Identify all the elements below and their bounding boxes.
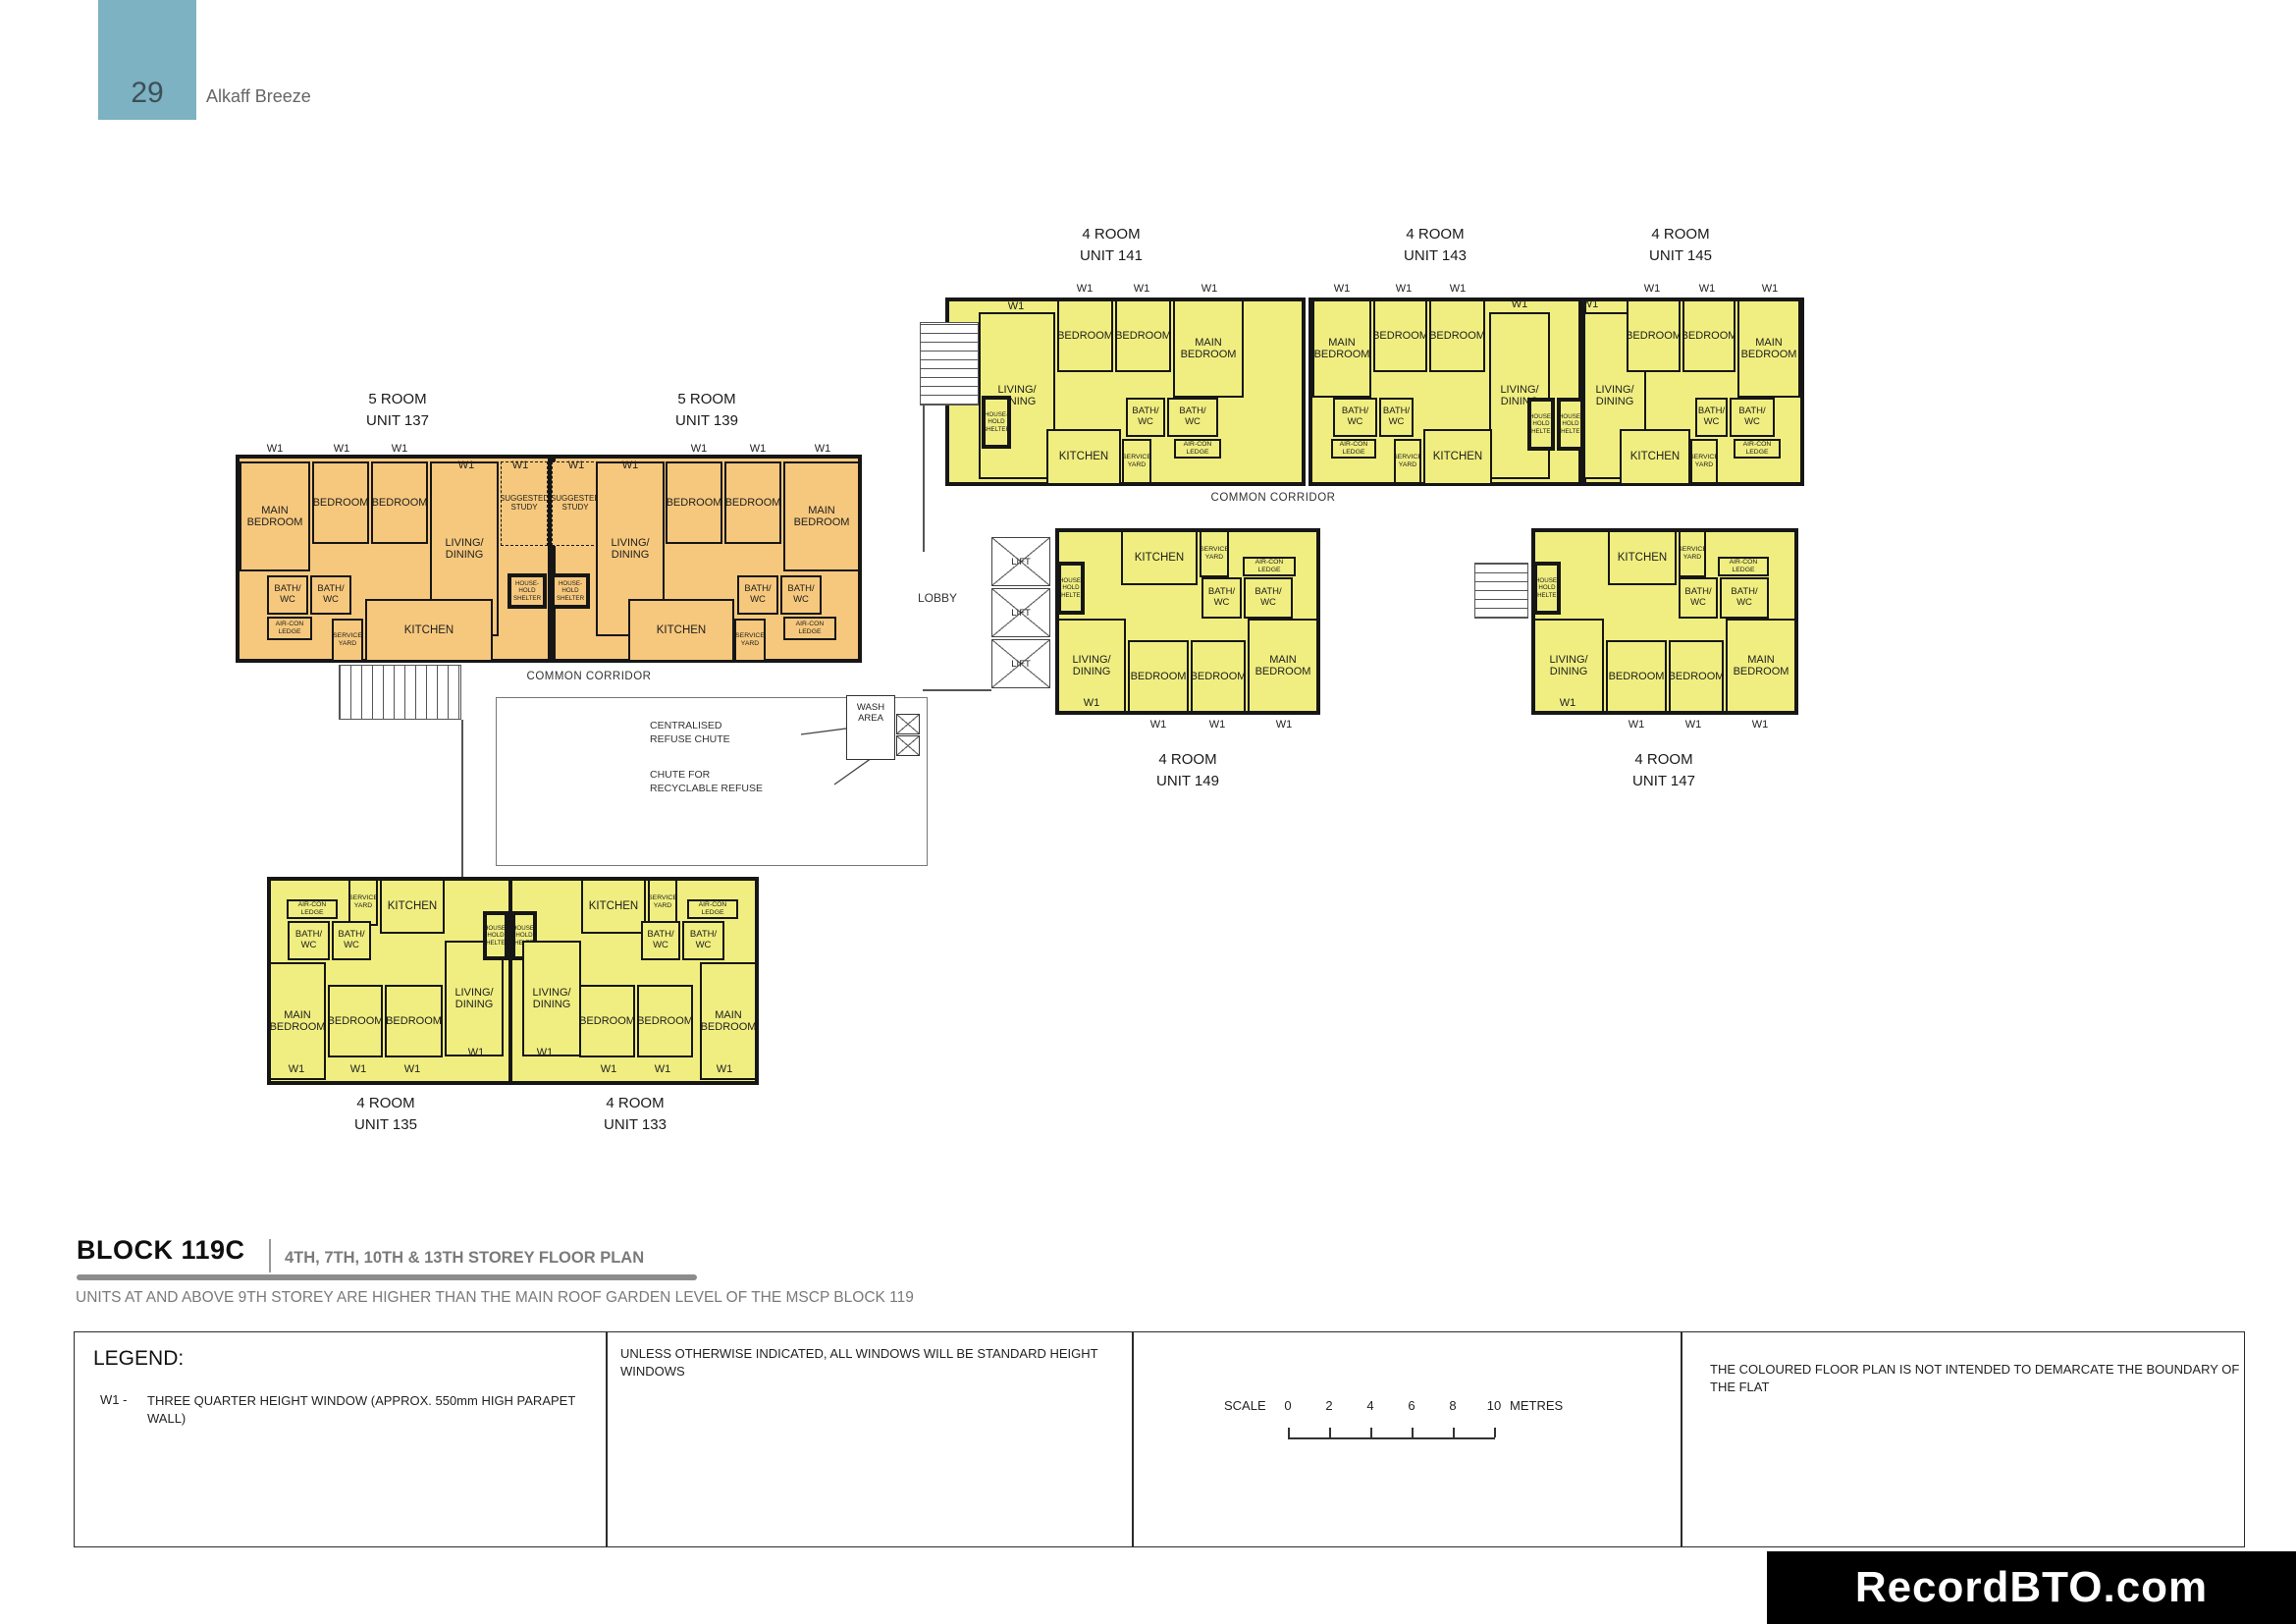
room-suggested-study: SUGGESTED STUDY bbox=[552, 461, 599, 546]
unit-title-141: 4 ROOM UNIT 141 bbox=[1047, 224, 1175, 267]
room-main-bedroom: MAIN BEDROOM bbox=[269, 962, 326, 1080]
legend-cell-divider bbox=[1681, 1331, 1682, 1547]
room-bath-wc: BATH/ WC bbox=[1167, 398, 1218, 437]
unit-title-133: 4 ROOM UNIT 133 bbox=[571, 1093, 699, 1136]
room-bath-wc: BATH/ WC bbox=[267, 575, 308, 615]
room-bedroom: BEDROOM bbox=[1682, 299, 1735, 372]
window-code-w1: W1 bbox=[1329, 283, 1355, 297]
room-main-bedroom: MAIN BEDROOM bbox=[783, 461, 860, 571]
room-bedroom: BEDROOM bbox=[637, 985, 693, 1057]
scale-tick-label: 4 bbox=[1361, 1398, 1380, 1413]
window-code-w1: W1 bbox=[686, 443, 712, 457]
room-bedroom: BEDROOM bbox=[1057, 299, 1113, 372]
legend-title: LEGEND: bbox=[93, 1347, 184, 1371]
room-aircon-ledge: AIR-CON LEDGE bbox=[1718, 557, 1769, 576]
window-code-w1: W1 bbox=[1577, 298, 1603, 312]
room-service-yard: SERVICE YARD bbox=[1690, 439, 1718, 484]
room-aircon-ledge: AIR-CON LEDGE bbox=[287, 899, 338, 919]
room-bath-wc: BATH/ WC bbox=[1695, 398, 1728, 437]
room-household-shelter: HOUSE- HOLD SHELTER bbox=[1057, 562, 1085, 615]
watermark-text: RecordBTO.com bbox=[1855, 1563, 2208, 1612]
scale-tick-label: 2 bbox=[1319, 1398, 1339, 1413]
recyclable-refuse-chute-label: CHUTE FOR RECYCLABLE REFUSE bbox=[650, 769, 817, 795]
room-bath-wc: BATH/ WC bbox=[1333, 398, 1377, 437]
room-main-bedroom: MAIN BEDROOM bbox=[240, 461, 310, 571]
window-code-w1: W1 bbox=[596, 1063, 621, 1077]
room-bedroom: BEDROOM bbox=[1128, 640, 1189, 713]
room-bath-wc: BATH/ WC bbox=[1720, 577, 1769, 619]
window-code-w1: W1 bbox=[284, 1063, 309, 1077]
unit-title-143: 4 ROOM UNIT 143 bbox=[1371, 224, 1499, 267]
room-main-bedroom: MAIN BEDROOM bbox=[1737, 299, 1800, 398]
scale-tick-mark bbox=[1412, 1428, 1414, 1437]
corridor-wall bbox=[461, 720, 463, 877]
room-service-yard: SERVICE YARD bbox=[332, 619, 363, 662]
scale-tick-label: 0 bbox=[1278, 1398, 1298, 1413]
lobby-label: LOBBY bbox=[908, 591, 967, 605]
room-bath-wc: BATH/ WC bbox=[332, 921, 371, 960]
scale-unit: METRES bbox=[1510, 1398, 1563, 1413]
room-bath-wc: BATH/ WC bbox=[780, 575, 822, 615]
window-code-w1: W1 bbox=[1681, 719, 1706, 732]
window-code-w1: W1 bbox=[712, 1063, 737, 1077]
room-main-bedroom: MAIN BEDROOM bbox=[1173, 299, 1244, 398]
unit-title-147: 4 ROOM UNIT 147 bbox=[1600, 749, 1728, 792]
window-code-w1: W1 bbox=[1694, 283, 1720, 297]
room-aircon-ledge: AIR-CON LEDGE bbox=[1174, 439, 1221, 459]
window-code-w1: W1 bbox=[1507, 298, 1532, 312]
legend-w1-text: THREE QUARTER HEIGHT WINDOW (APPROX. 550… bbox=[147, 1392, 589, 1427]
common-corridor-label-west: COMMON CORRIDOR bbox=[510, 671, 667, 682]
room-kitchen: KITCHEN bbox=[380, 879, 445, 934]
lift: LIFT bbox=[991, 639, 1050, 688]
room-kitchen: KITCHEN bbox=[1620, 429, 1690, 485]
scale-bar bbox=[1288, 1437, 1495, 1439]
unit-title-137: 5 ROOM UNIT 137 bbox=[334, 389, 461, 432]
room-living-dining: LIVING/ DINING bbox=[1489, 312, 1550, 479]
room-bedroom: BEDROOM bbox=[312, 461, 369, 544]
block-title: BLOCK 119C bbox=[77, 1235, 245, 1266]
window-code-w1: W1 bbox=[563, 460, 589, 473]
room-bedroom: BEDROOM bbox=[328, 985, 383, 1057]
room-kitchen: KITCHEN bbox=[1423, 429, 1492, 485]
window-code-w1: W1 bbox=[1391, 283, 1416, 297]
scale-tick-label: 6 bbox=[1402, 1398, 1421, 1413]
centralised-refuse-chute-label: CENTRALISED REFUSE CHUTE bbox=[650, 720, 799, 746]
window-code-w1: W1 bbox=[745, 443, 771, 457]
watermark: RecordBTO.com bbox=[1767, 1551, 2296, 1624]
staircase bbox=[339, 665, 461, 720]
room-kitchen: KITCHEN bbox=[1608, 530, 1677, 585]
room-bath-wc: BATH/ WC bbox=[641, 921, 680, 960]
room-living-dining: LIVING/ DINING bbox=[522, 941, 581, 1056]
room-household-shelter: HOUSE- HOLD SHELTER bbox=[483, 911, 508, 960]
lift: LIFT bbox=[991, 588, 1050, 637]
window-code-w1: W1 bbox=[1624, 719, 1649, 732]
room-bedroom: BEDROOM bbox=[371, 461, 428, 544]
unit-title-139: 5 ROOM UNIT 139 bbox=[643, 389, 771, 432]
window-code-w1: W1 bbox=[810, 443, 835, 457]
room-bath-wc: BATH/ WC bbox=[1679, 577, 1718, 619]
lobby-wall bbox=[923, 406, 925, 552]
scale-label: SCALE bbox=[1224, 1398, 1266, 1413]
room-household-shelter: HOUSE- HOLD SHELTER bbox=[982, 396, 1011, 449]
legend-w1-code: W1 - bbox=[100, 1392, 127, 1407]
room-bath-wc: BATH/ WC bbox=[288, 921, 330, 960]
room-kitchen: KITCHEN bbox=[581, 879, 646, 934]
unit-title-149: 4 ROOM UNIT 149 bbox=[1124, 749, 1252, 792]
room-bedroom: BEDROOM bbox=[1669, 640, 1724, 713]
window-code-w1: W1 bbox=[387, 443, 412, 457]
window-code-w1: W1 bbox=[1445, 283, 1470, 297]
window-code-w1: W1 bbox=[1747, 719, 1773, 732]
room-aircon-ledge: AIR-CON LEDGE bbox=[1243, 557, 1296, 576]
room-bath-wc: BATH/ WC bbox=[310, 575, 351, 615]
room-service-yard: SERVICE YARD bbox=[1122, 439, 1151, 484]
room-bath-wc: BATH/ WC bbox=[682, 921, 724, 960]
room-bath-wc: BATH/ WC bbox=[1201, 577, 1242, 619]
scale-tick-mark bbox=[1453, 1428, 1455, 1437]
room-bedroom: BEDROOM bbox=[1606, 640, 1667, 713]
lobby-wall-bottom bbox=[923, 689, 991, 691]
room-bedroom: BEDROOM bbox=[1115, 299, 1171, 372]
room-bath-wc: BATH/ WC bbox=[1244, 577, 1293, 619]
room-bath-wc: BATH/ WC bbox=[737, 575, 778, 615]
window-code-w1: W1 bbox=[346, 1063, 371, 1077]
roof-garden-note: UNITS AT AND ABOVE 9TH STOREY ARE HIGHER… bbox=[76, 1289, 914, 1307]
window-code-w1: W1 bbox=[1197, 283, 1222, 297]
room-service-yard: SERVICE YARD bbox=[734, 619, 766, 662]
room-main-bedroom: MAIN BEDROOM bbox=[1312, 299, 1371, 398]
title-underline bbox=[77, 1274, 697, 1280]
room-bath-wc: BATH/ WC bbox=[1379, 398, 1414, 437]
window-code-w1: W1 bbox=[1555, 697, 1580, 711]
room-household-shelter: HOUSE- HOLD SHELTER bbox=[1557, 398, 1584, 451]
window-code-w1: W1 bbox=[1079, 697, 1104, 711]
window-code-w1: W1 bbox=[1003, 300, 1029, 314]
room-bedroom: BEDROOM bbox=[1373, 299, 1427, 372]
boundary-note: THE COLOURED FLOOR PLAN IS NOT INTENDED … bbox=[1710, 1361, 2245, 1395]
room-household-shelter: HOUSE- HOLD SHELTER bbox=[507, 573, 547, 609]
window-code-w1: W1 bbox=[329, 443, 354, 457]
room-aircon-ledge: AIR-CON LEDGE bbox=[687, 899, 738, 919]
window-code-w1: W1 bbox=[1639, 283, 1665, 297]
room-aircon-ledge: AIR-CON LEDGE bbox=[1331, 439, 1376, 459]
room-bedroom: BEDROOM bbox=[579, 985, 635, 1057]
room-kitchen: KITCHEN bbox=[365, 599, 493, 662]
room-service-yard: SERVICE YARD bbox=[1394, 439, 1421, 484]
room-suggested-study: SUGGESTED STUDY bbox=[501, 461, 548, 546]
room-kitchen: KITCHEN bbox=[1046, 429, 1121, 485]
staircase bbox=[920, 322, 979, 406]
room-aircon-ledge: AIR-CON LEDGE bbox=[1734, 439, 1781, 459]
room-bedroom: BEDROOM bbox=[385, 985, 443, 1057]
wash-area: WASH AREA bbox=[846, 695, 895, 760]
lift: LIFT bbox=[991, 537, 1050, 586]
scale-tick-mark bbox=[1329, 1428, 1331, 1437]
scale-tick-mark bbox=[1494, 1428, 1496, 1437]
room-main-bedroom: MAIN BEDROOM bbox=[1248, 619, 1318, 713]
room-household-shelter: HOUSE- HOLD SHELTER bbox=[551, 573, 590, 609]
room-household-shelter: HOUSE- HOLD SHELTER bbox=[1527, 398, 1555, 451]
scale-tick-mark bbox=[1370, 1428, 1372, 1437]
window-code-w1: W1 bbox=[1129, 283, 1154, 297]
centralised-refuse-chute-box bbox=[896, 714, 920, 734]
scale-tick-mark bbox=[1288, 1428, 1290, 1437]
unit-title-145: 4 ROOM UNIT 145 bbox=[1617, 224, 1744, 267]
window-code-w1: W1 bbox=[1072, 283, 1097, 297]
room-bath-wc: BATH/ WC bbox=[1126, 398, 1165, 437]
room-kitchen: KITCHEN bbox=[628, 599, 734, 662]
room-service-yard: SERVICE YARD bbox=[348, 879, 378, 926]
legend-cell-divider bbox=[606, 1331, 608, 1547]
room-aircon-ledge: AIR-CON LEDGE bbox=[267, 617, 312, 640]
scale-tick-label: 10 bbox=[1484, 1398, 1504, 1413]
room-main-bedroom: MAIN BEDROOM bbox=[1726, 619, 1796, 713]
storey-subtitle: 4TH, 7TH, 10TH & 13TH STOREY FLOOR PLAN bbox=[285, 1249, 644, 1268]
room-bedroom: BEDROOM bbox=[1191, 640, 1246, 713]
window-code-w1: W1 bbox=[617, 460, 643, 473]
room-household-shelter: HOUSE- HOLD SHELTER bbox=[1533, 562, 1561, 615]
window-code-w1: W1 bbox=[1204, 719, 1230, 732]
unit-title-135: 4 ROOM UNIT 135 bbox=[322, 1093, 450, 1136]
room-service-yard: SERVICE YARD bbox=[648, 879, 677, 926]
recyclable-refuse-chute-box bbox=[896, 735, 920, 756]
room-bedroom: BEDROOM bbox=[1429, 299, 1485, 372]
window-code-w1: W1 bbox=[463, 1047, 489, 1060]
window-code-w1: W1 bbox=[532, 1047, 558, 1060]
window-code-w1: W1 bbox=[1757, 283, 1783, 297]
title-divider bbox=[269, 1239, 271, 1272]
windows-note: UNLESS OTHERWISE INDICATED, ALL WINDOWS … bbox=[620, 1345, 1121, 1380]
scale-tick-label: 8 bbox=[1443, 1398, 1463, 1413]
window-code-w1: W1 bbox=[507, 460, 533, 473]
window-code-w1: W1 bbox=[400, 1063, 425, 1077]
window-code-w1: W1 bbox=[650, 1063, 675, 1077]
window-code-w1: W1 bbox=[262, 443, 288, 457]
room-bedroom: BEDROOM bbox=[724, 461, 781, 544]
room-bedroom: BEDROOM bbox=[1627, 299, 1681, 372]
common-corridor-label-east: COMMON CORRIDOR bbox=[1195, 492, 1352, 504]
window-code-w1: W1 bbox=[1146, 719, 1171, 732]
floor-plan-page: { "header": { "page_number": "29", "proj… bbox=[0, 0, 2296, 1624]
staircase bbox=[1474, 563, 1528, 619]
room-kitchen: KITCHEN bbox=[1121, 530, 1198, 585]
room-bedroom: BEDROOM bbox=[666, 461, 722, 544]
window-code-w1: W1 bbox=[454, 460, 479, 473]
legend-cell-divider bbox=[1132, 1331, 1134, 1547]
room-service-yard: SERVICE YARD bbox=[1679, 530, 1706, 577]
room-aircon-ledge: AIR-CON LEDGE bbox=[783, 617, 836, 640]
room-main-bedroom: MAIN BEDROOM bbox=[700, 962, 757, 1080]
window-code-w1: W1 bbox=[1271, 719, 1297, 732]
room-bath-wc: BATH/ WC bbox=[1730, 398, 1775, 437]
room-service-yard: SERVICE YARD bbox=[1200, 530, 1229, 577]
